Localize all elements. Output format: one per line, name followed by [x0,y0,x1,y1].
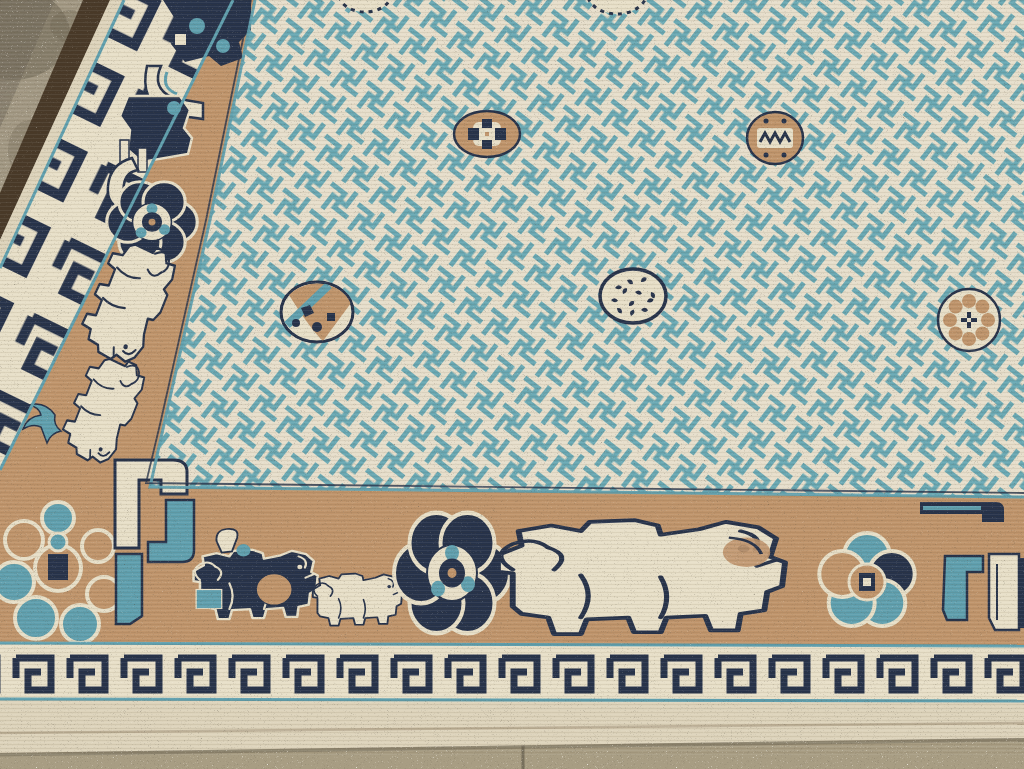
photo-texture [0,0,1024,769]
rug-photograph: Antique Chinese Peking carpet corner on … [0,0,1024,769]
scene-svg: Antique Chinese Peking carpet corner on … [0,0,1024,769]
